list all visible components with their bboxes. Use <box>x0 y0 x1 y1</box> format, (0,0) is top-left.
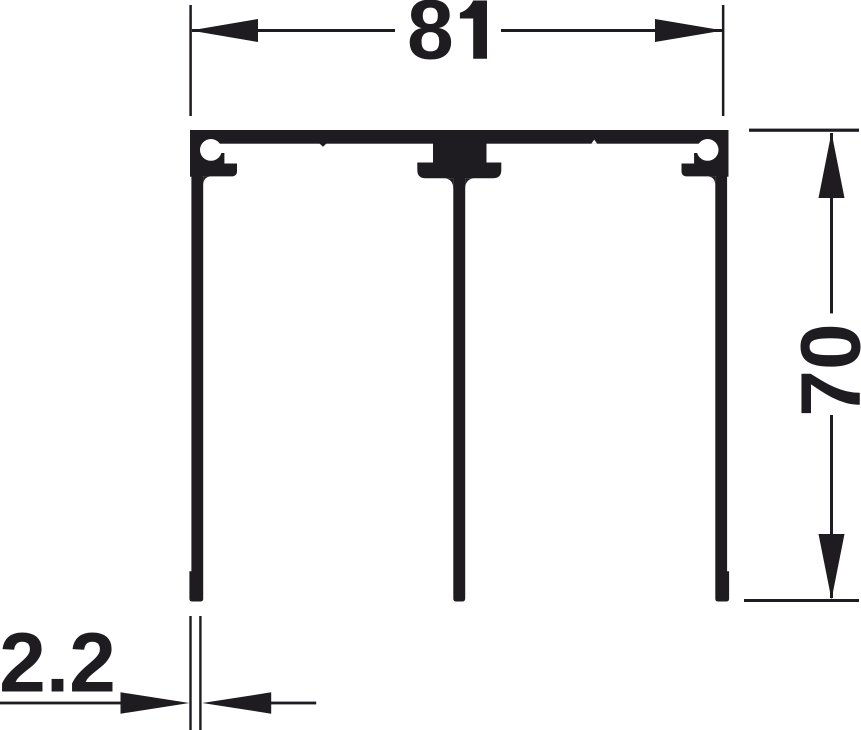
svg-text:70: 70 <box>784 323 861 416</box>
svg-text:8: 8 <box>407 0 454 77</box>
svg-text:2.2: 2.2 <box>0 615 116 709</box>
